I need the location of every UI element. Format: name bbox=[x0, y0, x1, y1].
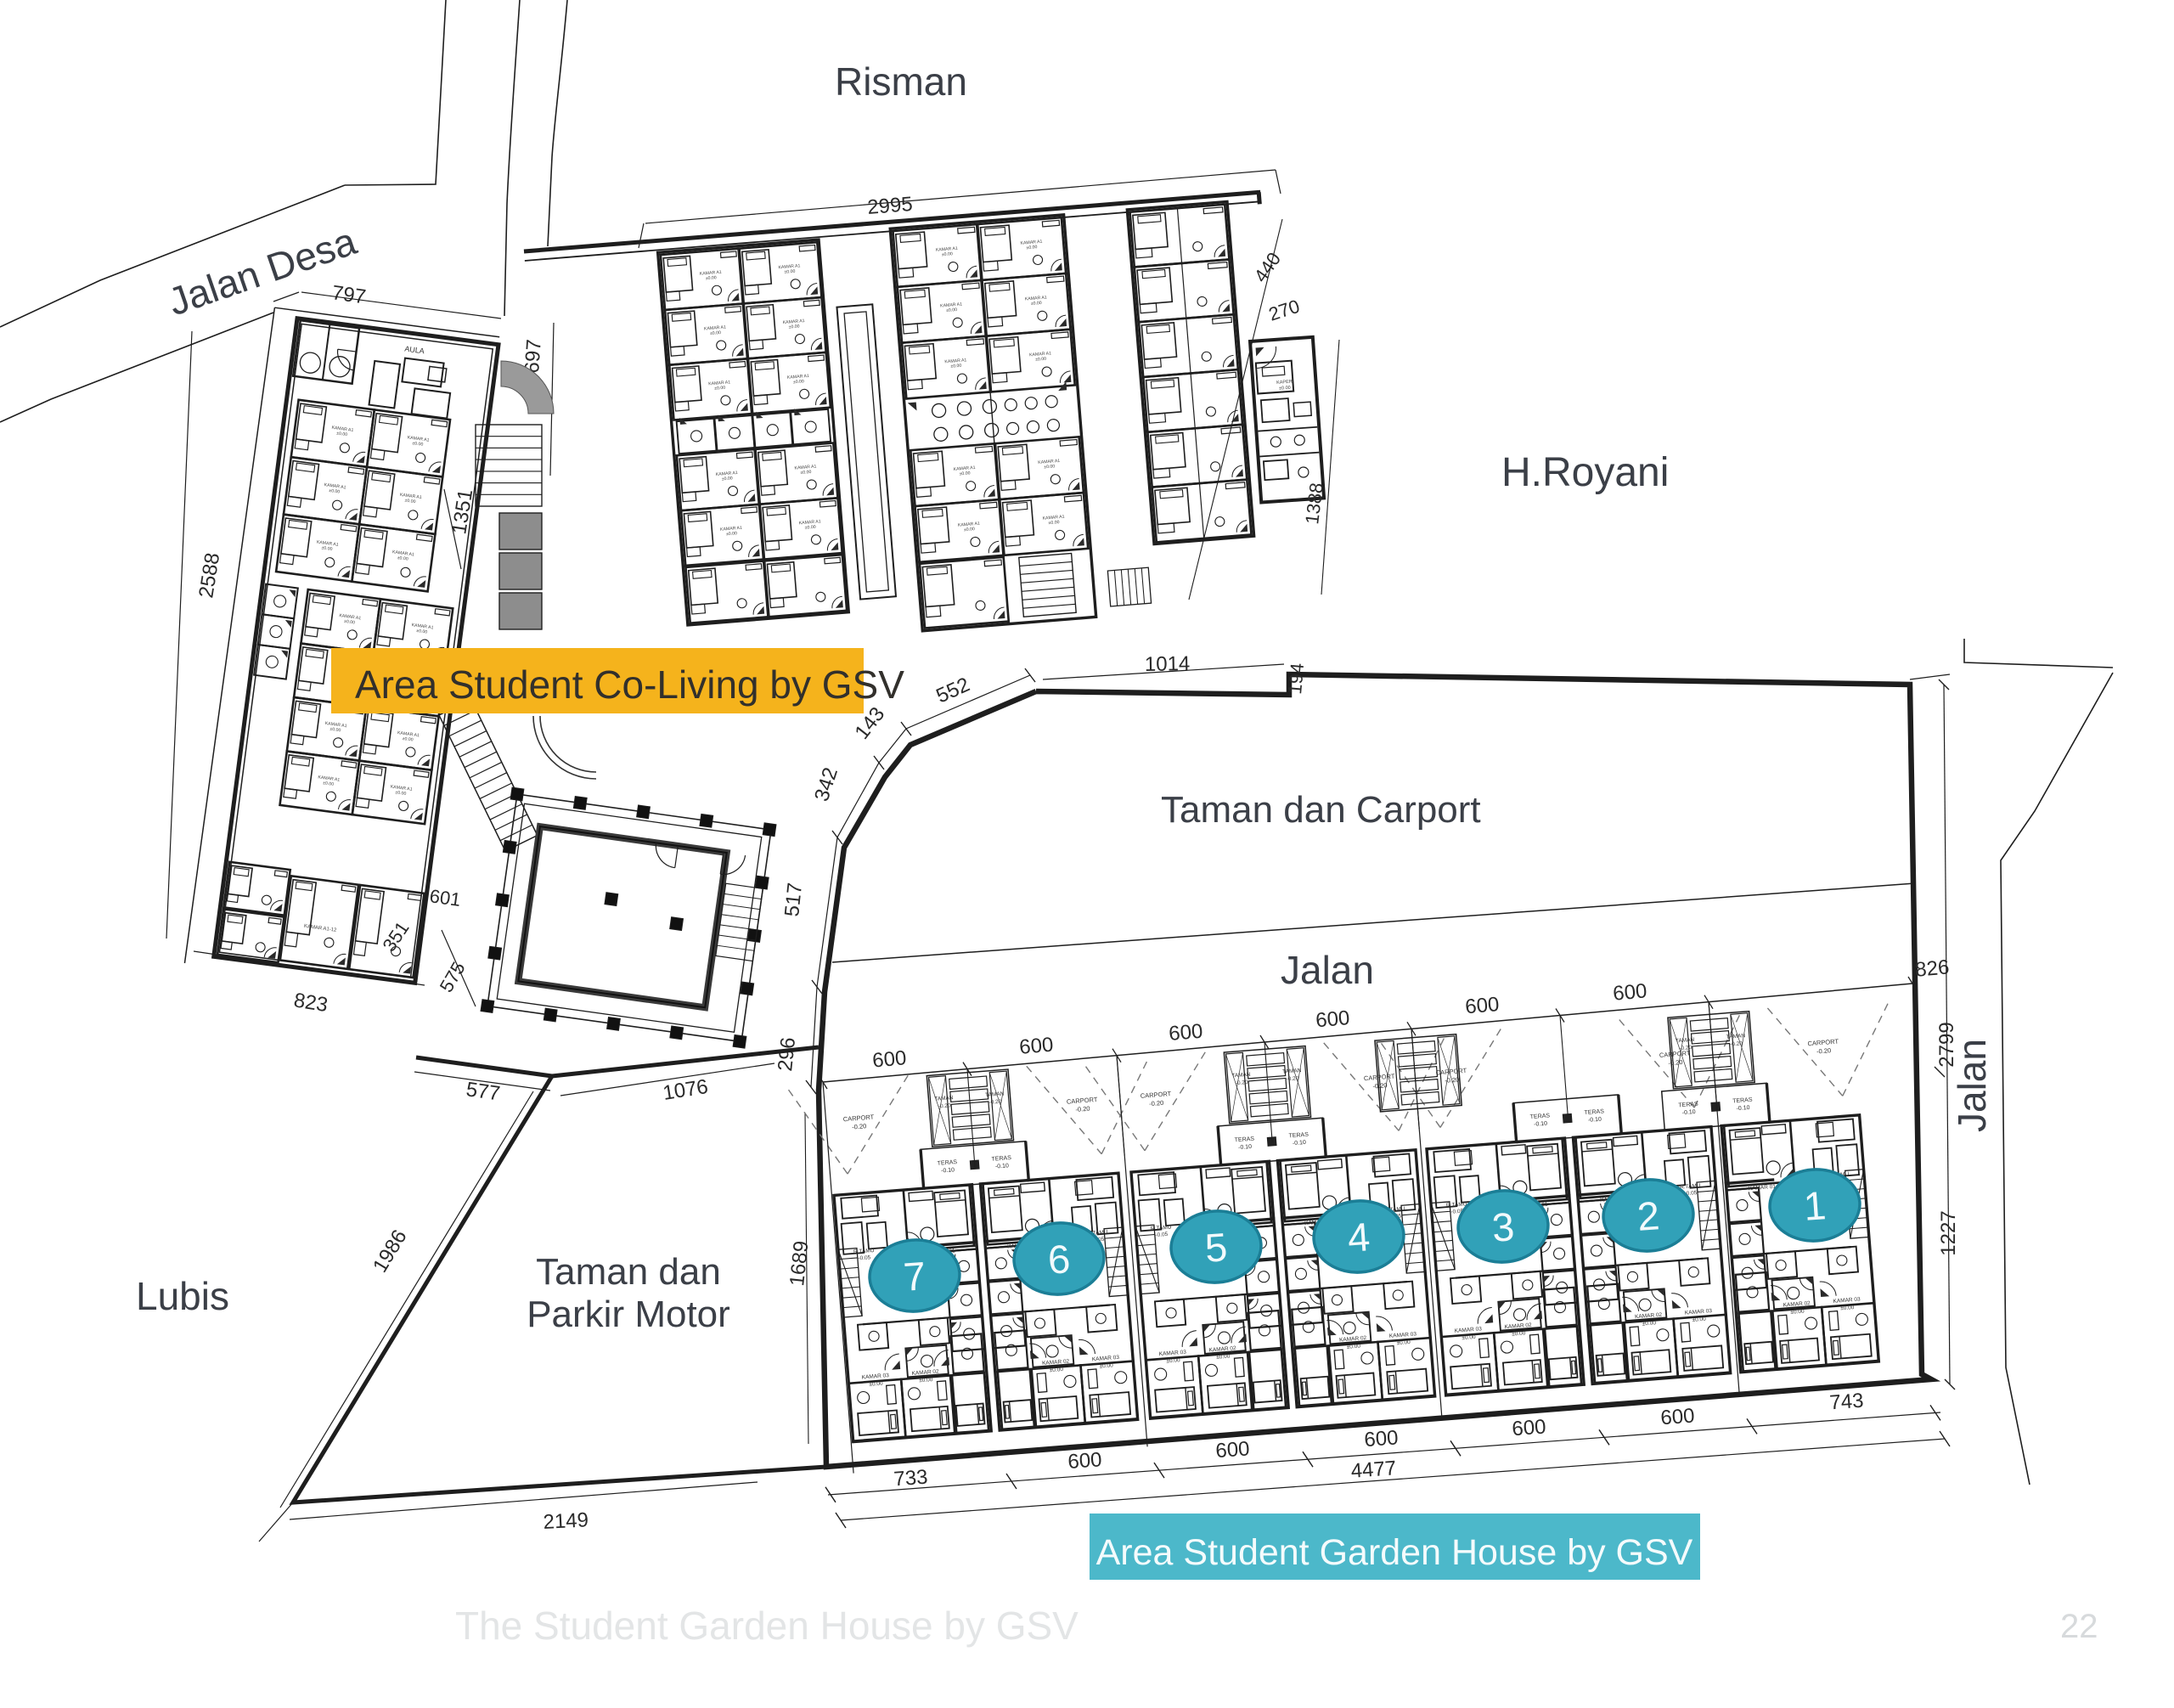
svg-text:Jalan: Jalan bbox=[1281, 948, 1374, 992]
svg-text:4: 4 bbox=[1346, 1214, 1371, 1260]
svg-text:-0.20: -0.20 bbox=[1236, 1079, 1249, 1086]
svg-text:±0.00: ±0.00 bbox=[804, 525, 815, 531]
svg-text:±0.00: ±0.00 bbox=[784, 269, 795, 275]
svg-text:-0.20: -0.20 bbox=[1816, 1046, 1832, 1055]
svg-text:-0.05: -0.05 bbox=[1155, 1232, 1169, 1238]
svg-text:±0.00: ±0.00 bbox=[1396, 1339, 1411, 1346]
svg-text:Area Student Co-Living by GSV: Area Student Co-Living by GSV bbox=[355, 662, 904, 707]
svg-text:600: 600 bbox=[1364, 1426, 1400, 1452]
svg-text:-0.10: -0.10 bbox=[995, 1163, 1010, 1170]
svg-text:-0.20: -0.20 bbox=[1286, 1075, 1299, 1082]
svg-text:±0.00: ±0.00 bbox=[793, 379, 804, 385]
svg-text:±0.00: ±0.00 bbox=[1642, 1320, 1656, 1327]
svg-text:600: 600 bbox=[1612, 979, 1647, 1005]
svg-text:±0.00: ±0.00 bbox=[1166, 1357, 1180, 1364]
svg-text:±0.00: ±0.00 bbox=[1462, 1334, 1476, 1341]
svg-text:5: 5 bbox=[1203, 1224, 1229, 1271]
svg-text:±0.00: ±0.00 bbox=[1346, 1344, 1360, 1350]
svg-text:6: 6 bbox=[1046, 1236, 1072, 1282]
svg-text:600: 600 bbox=[871, 1046, 907, 1072]
svg-text:±0.00: ±0.00 bbox=[1840, 1305, 1855, 1311]
svg-text:±0.00: ±0.00 bbox=[1035, 357, 1046, 363]
svg-text:22: 22 bbox=[2060, 1608, 2098, 1645]
svg-text:H.Royani: H.Royani bbox=[1501, 450, 1669, 495]
svg-text:±0.00: ±0.00 bbox=[1692, 1316, 1706, 1323]
svg-text:±0.00: ±0.00 bbox=[800, 470, 811, 476]
svg-text:±0.00: ±0.00 bbox=[946, 307, 957, 313]
svg-text:-0.20: -0.20 bbox=[988, 1099, 1002, 1106]
svg-text:±0.00: ±0.00 bbox=[714, 386, 725, 392]
svg-text:Taman dan Carport: Taman dan Carport bbox=[1161, 789, 1481, 831]
svg-text:-0.10: -0.10 bbox=[1736, 1105, 1750, 1112]
svg-text:1689: 1689 bbox=[786, 1240, 813, 1288]
svg-text:±0.00: ±0.00 bbox=[869, 1381, 883, 1388]
svg-text:±0.00: ±0.00 bbox=[950, 364, 961, 369]
svg-text:Risman: Risman bbox=[835, 59, 967, 104]
svg-text:2995: 2995 bbox=[866, 193, 913, 219]
svg-text:-0.20: -0.20 bbox=[852, 1122, 867, 1130]
svg-text:600: 600 bbox=[1215, 1437, 1251, 1463]
svg-text:-0.10: -0.10 bbox=[941, 1167, 955, 1174]
svg-text:-0.20: -0.20 bbox=[1730, 1040, 1743, 1047]
svg-text:-0.20: -0.20 bbox=[1075, 1105, 1090, 1113]
svg-text:±0.00: ±0.00 bbox=[964, 527, 975, 533]
svg-text:797: 797 bbox=[330, 281, 367, 308]
svg-text:826: 826 bbox=[1914, 955, 1950, 981]
svg-text:±0.00: ±0.00 bbox=[726, 531, 737, 537]
svg-text:±0.00: ±0.00 bbox=[710, 330, 721, 336]
svg-text:±0.00: ±0.00 bbox=[706, 275, 717, 281]
svg-text:±0.00: ±0.00 bbox=[1099, 1362, 1113, 1369]
svg-text:577: 577 bbox=[465, 1078, 501, 1105]
svg-text:-0.10: -0.10 bbox=[1588, 1117, 1602, 1124]
svg-text:194: 194 bbox=[1284, 662, 1308, 696]
svg-text:4477: 4477 bbox=[1350, 1457, 1397, 1483]
svg-text:±0.00: ±0.00 bbox=[1048, 520, 1059, 526]
svg-text:Jalan: Jalan bbox=[1950, 1039, 1994, 1132]
svg-text:-0.10: -0.10 bbox=[1534, 1121, 1548, 1128]
svg-text:600: 600 bbox=[1464, 993, 1500, 1018]
svg-text:±0.00: ±0.00 bbox=[1790, 1309, 1805, 1316]
svg-text:2149: 2149 bbox=[543, 1508, 589, 1534]
svg-text:733: 733 bbox=[893, 1466, 929, 1491]
svg-text:7: 7 bbox=[902, 1253, 927, 1299]
svg-text:600: 600 bbox=[1512, 1415, 1547, 1440]
svg-text:517: 517 bbox=[780, 882, 807, 918]
svg-text:Taman dan: Taman dan bbox=[536, 1251, 721, 1293]
svg-text:296: 296 bbox=[774, 1036, 800, 1073]
svg-text:±0.00: ±0.00 bbox=[1044, 464, 1055, 470]
svg-text:±0.00: ±0.00 bbox=[1049, 1367, 1063, 1373]
svg-text:±0.00: ±0.00 bbox=[788, 324, 799, 330]
svg-text:±0.00: ±0.00 bbox=[1216, 1354, 1231, 1361]
svg-text:600: 600 bbox=[1018, 1034, 1054, 1059]
svg-text:600: 600 bbox=[1168, 1020, 1203, 1046]
svg-text:743: 743 bbox=[1829, 1390, 1865, 1415]
svg-text:-0.05: -0.05 bbox=[858, 1254, 871, 1261]
svg-text:-0.10: -0.10 bbox=[1293, 1140, 1307, 1147]
svg-text:-0.20: -0.20 bbox=[1149, 1099, 1164, 1108]
svg-text:±0.00: ±0.00 bbox=[959, 471, 970, 476]
svg-text:-0.20: -0.20 bbox=[1679, 1045, 1692, 1051]
svg-text:±0.00: ±0.00 bbox=[942, 251, 953, 257]
svg-text:-0.10: -0.10 bbox=[1238, 1144, 1253, 1151]
svg-text:1227: 1227 bbox=[1937, 1210, 1960, 1255]
svg-text:-0.10: -0.10 bbox=[1682, 1109, 1697, 1116]
svg-text:600: 600 bbox=[1067, 1448, 1103, 1474]
svg-text:±0.00: ±0.00 bbox=[1031, 301, 1042, 307]
svg-text:600: 600 bbox=[1315, 1006, 1350, 1032]
svg-text:±0.00: ±0.00 bbox=[1512, 1330, 1526, 1337]
svg-text:Area Student Garden House by G: Area Student Garden House by GSV bbox=[1096, 1532, 1693, 1573]
svg-text:±0.00: ±0.00 bbox=[1026, 245, 1037, 251]
svg-text:1: 1 bbox=[1802, 1182, 1828, 1229]
svg-text:Parkir Motor: Parkir Motor bbox=[527, 1294, 730, 1335]
svg-text:-0.20: -0.20 bbox=[1668, 1058, 1683, 1067]
svg-text:600: 600 bbox=[1660, 1405, 1696, 1430]
svg-text:±0.00: ±0.00 bbox=[722, 476, 733, 482]
svg-text:-0.20: -0.20 bbox=[938, 1102, 952, 1109]
svg-text:Lubis: Lubis bbox=[136, 1274, 229, 1318]
svg-text:601: 601 bbox=[428, 885, 462, 910]
svg-text:2: 2 bbox=[1636, 1192, 1661, 1239]
svg-text:3: 3 bbox=[1490, 1203, 1516, 1250]
svg-text:±0.00: ±0.00 bbox=[1279, 386, 1291, 392]
svg-text:±0.00: ±0.00 bbox=[919, 1377, 933, 1384]
svg-text:The Student Garden House by GS: The Student Garden House by GSV bbox=[455, 1604, 1079, 1648]
